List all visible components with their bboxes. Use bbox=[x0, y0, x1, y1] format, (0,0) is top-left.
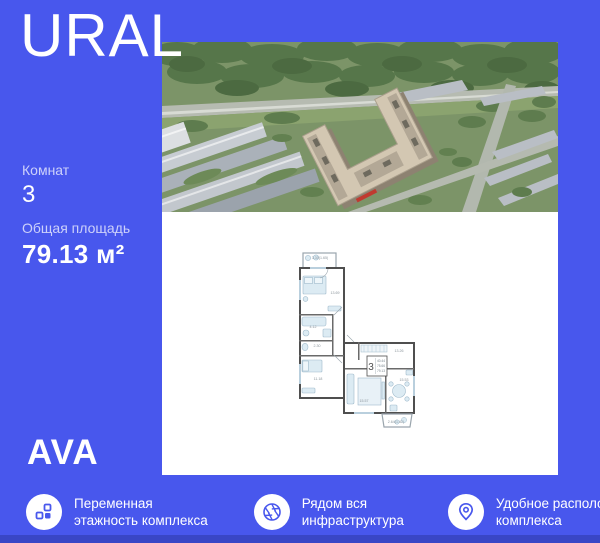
room-area-hallway: 13.26 bbox=[395, 349, 404, 353]
feature-label: Удобное расположение комплекса bbox=[496, 495, 600, 529]
rooms-spec: Комнат 3 bbox=[22, 162, 69, 209]
plan-stamp-line: 40.44 bbox=[377, 359, 385, 363]
feature-icon-circle bbox=[448, 494, 484, 530]
area-spec: Общая площадь 79.13 м² bbox=[22, 220, 130, 270]
bottom-accent-strip bbox=[0, 535, 600, 543]
floor-plan-drawing: 3 40.44 75.66 79.13 3.30(1.65) 13.69 4.1… bbox=[298, 252, 420, 429]
feature-label-line1: Рядом вся bbox=[302, 495, 404, 512]
page-title: URAL bbox=[20, 6, 184, 66]
aperture-icon bbox=[262, 502, 282, 522]
features-row: Переменная этажность комплекса Рядом вся… bbox=[0, 488, 600, 536]
plan-stamp-line: 75.66 bbox=[377, 364, 385, 368]
plan-stamp: 3 40.44 75.66 79.13 bbox=[367, 356, 387, 376]
room-area-living-room: 15.57 bbox=[360, 399, 369, 403]
feature-label: Переменная этажность комплекса bbox=[74, 495, 208, 529]
floor-plan-panel: 3 40.44 75.66 79.13 3.30(1.65) 13.69 4.1… bbox=[162, 212, 558, 475]
feature-infrastructure: Рядом вся инфраструктура bbox=[254, 494, 404, 530]
room-area-bathroom: 4.12 bbox=[310, 325, 317, 329]
room-area-balcony-top: 3.30(1.65) bbox=[312, 256, 328, 260]
feature-label: Рядом вся инфраструктура bbox=[302, 495, 404, 529]
room-area-kitchen: 15.53 bbox=[400, 378, 409, 382]
room-area-bedroom-2: 11.18 bbox=[314, 377, 323, 381]
rooms-label: Комнат bbox=[22, 162, 69, 178]
area-value: 79.13 м² bbox=[22, 239, 130, 270]
feature-variable-height: Переменная этажность комплекса bbox=[26, 494, 208, 530]
feature-label-line1: Переменная bbox=[74, 495, 208, 512]
location-pin-icon bbox=[457, 502, 475, 522]
aerial-photo-illustration bbox=[162, 42, 558, 212]
floor-plan: 3 40.44 75.66 79.13 3.30(1.65) 13.69 4.1… bbox=[298, 252, 420, 429]
aerial-photo bbox=[162, 42, 558, 212]
feature-label-line2: инфраструктура bbox=[302, 512, 404, 529]
room-area-bedroom: 13.69 bbox=[331, 291, 340, 295]
developer-logo: AVA bbox=[27, 433, 99, 473]
feature-label-line2: комплекса bbox=[496, 512, 600, 529]
feature-location: Удобное расположение комплекса bbox=[448, 494, 600, 530]
rooms-value: 3 bbox=[22, 181, 69, 209]
feature-icon-circle bbox=[26, 494, 62, 530]
feature-label-line2: этажность комплекса bbox=[74, 512, 208, 529]
feature-label-line1: Удобное расположение bbox=[496, 495, 600, 512]
room-area-wc: 2.30 bbox=[314, 344, 321, 348]
plan-stamp-line: 79.13 bbox=[377, 369, 385, 373]
plan-stamp-rooms: 3 bbox=[368, 362, 374, 373]
feature-icon-circle bbox=[254, 494, 290, 530]
area-label: Общая площадь bbox=[22, 220, 130, 236]
blocks-icon bbox=[35, 503, 53, 521]
room-area-balcony-bottom: 2.64(1.82) bbox=[388, 420, 404, 424]
